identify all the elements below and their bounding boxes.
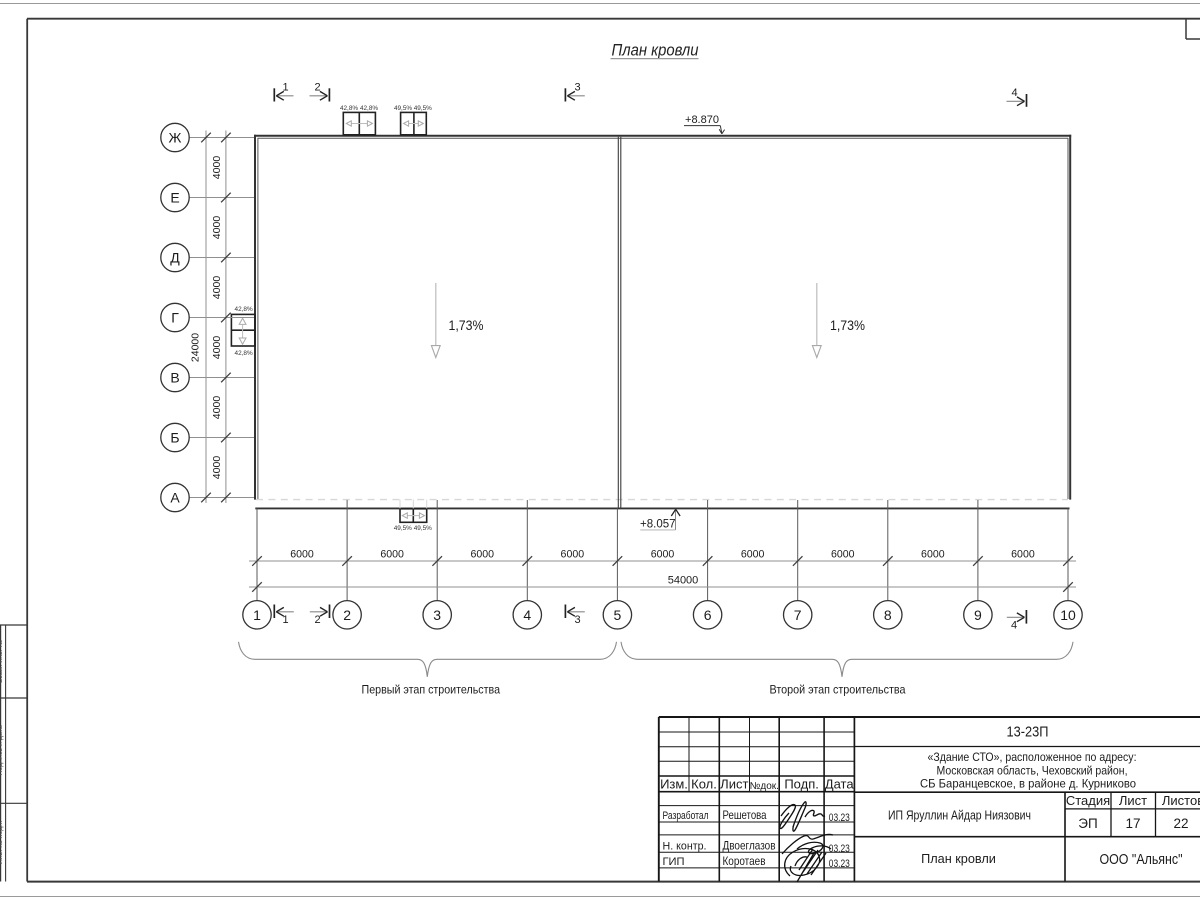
svg-text:24000: 24000 xyxy=(189,333,201,362)
svg-text:План кровли: План кровли xyxy=(921,852,996,866)
svg-text:4: 4 xyxy=(1011,620,1017,632)
svg-text:5: 5 xyxy=(614,607,622,623)
svg-text:План кровли: План кровли xyxy=(612,41,699,60)
svg-text:ООО "Альянс": ООО "Альянс" xyxy=(1100,852,1183,868)
svg-text:Лист: Лист xyxy=(1119,793,1147,808)
svg-text:4000: 4000 xyxy=(211,456,223,480)
svg-text:4000: 4000 xyxy=(211,276,223,300)
svg-text:13-23П: 13-23П xyxy=(1007,725,1049,741)
svg-text:6: 6 xyxy=(704,607,712,623)
svg-text:4: 4 xyxy=(523,607,531,623)
svg-text:1: 1 xyxy=(282,82,288,94)
svg-text:8: 8 xyxy=(884,607,892,623)
svg-text:ИП Яруллин Айдар Ниязович: ИП Яруллин Айдар Ниязович xyxy=(888,808,1031,822)
svg-text:А: А xyxy=(170,490,180,506)
svg-text:49,5%: 49,5% xyxy=(394,105,412,112)
svg-text:Стадия: Стадия xyxy=(1066,793,1110,808)
svg-text:4000: 4000 xyxy=(211,396,223,420)
svg-text:6000: 6000 xyxy=(1011,549,1035,561)
svg-text:42,8%: 42,8% xyxy=(360,105,378,112)
svg-text:Дата: Дата xyxy=(825,777,855,792)
svg-text:49,5%: 49,5% xyxy=(414,105,432,112)
svg-text:Кол.: Кол. xyxy=(691,777,717,792)
svg-text:ЭП: ЭП xyxy=(1078,816,1097,831)
svg-text:2: 2 xyxy=(314,82,320,94)
svg-text:Двоеглазов: Двоеглазов xyxy=(723,838,776,852)
svg-text:22: 22 xyxy=(1173,816,1188,831)
svg-text:03.23: 03.23 xyxy=(829,843,850,855)
svg-text:03.23: 03.23 xyxy=(829,812,850,824)
svg-text:6000: 6000 xyxy=(380,549,404,561)
svg-text:6000: 6000 xyxy=(741,549,765,561)
svg-text:Московская область, Чеховский: Московская область, Чеховский район, xyxy=(937,763,1128,777)
svg-text:Е: Е xyxy=(170,190,179,206)
svg-text:Подп.: Подп. xyxy=(784,777,819,792)
svg-text:Инв. № подл.: Инв. № подл. xyxy=(0,821,4,865)
svg-text:6000: 6000 xyxy=(831,549,855,561)
svg-text:+8.057: +8.057 xyxy=(640,519,676,531)
svg-text:Взам. инв. №: Взам. инв. № xyxy=(0,640,4,683)
svg-text:В: В xyxy=(170,370,179,386)
svg-text:3: 3 xyxy=(433,607,441,623)
svg-text:Б: Б xyxy=(170,430,179,446)
svg-text:Решетова: Решетова xyxy=(723,808,767,822)
svg-text:Ж: Ж xyxy=(169,130,182,146)
svg-text:«Здание СТО», расположенное по: «Здание СТО», расположенное по адресу: xyxy=(928,750,1137,764)
svg-text:3: 3 xyxy=(574,82,580,94)
svg-text:42,8%: 42,8% xyxy=(340,105,358,112)
svg-text:Изм.: Изм. xyxy=(660,777,688,792)
svg-text:+8.870: +8.870 xyxy=(685,114,719,126)
svg-text:1: 1 xyxy=(282,614,288,626)
svg-text:1,73%: 1,73% xyxy=(830,317,865,333)
svg-text:4000: 4000 xyxy=(211,336,223,360)
svg-text:Разработал: Разработал xyxy=(663,810,709,822)
svg-text:54000: 54000 xyxy=(668,574,699,586)
svg-text:10: 10 xyxy=(1060,607,1076,623)
svg-text:1,73%: 1,73% xyxy=(449,317,484,333)
svg-text:Листов: Листов xyxy=(1162,793,1200,808)
svg-text:6000: 6000 xyxy=(561,549,585,561)
svg-text:6000: 6000 xyxy=(651,549,675,561)
svg-text:СБ Баранцевское, в районе д. К: СБ Баранцевское, в районе д. Курниково xyxy=(920,777,1136,791)
svg-text:3: 3 xyxy=(574,614,580,626)
svg-text:6000: 6000 xyxy=(921,549,945,561)
svg-text:49,5%: 49,5% xyxy=(394,525,412,532)
svg-text:2: 2 xyxy=(314,614,320,626)
svg-text:ГИП: ГИП xyxy=(663,856,685,868)
svg-text:9: 9 xyxy=(974,607,982,623)
svg-text:4000: 4000 xyxy=(211,216,223,240)
svg-text:Второй этап строительства: Второй этап строительства xyxy=(770,683,906,697)
svg-text:42,8%: 42,8% xyxy=(235,350,253,357)
svg-text:6000: 6000 xyxy=(290,549,314,561)
svg-text:Г: Г xyxy=(171,310,179,326)
svg-text:Подпись и дата: Подпись и дата xyxy=(0,725,4,775)
svg-text:4: 4 xyxy=(1011,87,1017,99)
svg-text:4000: 4000 xyxy=(211,156,223,180)
svg-text:Первый этап строительства: Первый этап строительства xyxy=(362,683,501,697)
svg-text:1: 1 xyxy=(253,607,261,623)
svg-text:42,8%: 42,8% xyxy=(235,306,253,313)
svg-text:7: 7 xyxy=(794,607,802,623)
svg-text:№док.: №док. xyxy=(750,781,779,792)
svg-text:Д: Д xyxy=(170,250,180,266)
svg-text:49,5%: 49,5% xyxy=(414,525,432,532)
svg-text:Лист: Лист xyxy=(720,777,748,792)
svg-text:Н. контр.: Н. контр. xyxy=(663,840,707,852)
svg-text:03.23: 03.23 xyxy=(829,858,850,870)
svg-text:17: 17 xyxy=(1125,816,1140,831)
svg-text:6000: 6000 xyxy=(470,549,494,561)
svg-text:2: 2 xyxy=(343,607,351,623)
svg-text:Коротаев: Коротаев xyxy=(723,854,766,868)
